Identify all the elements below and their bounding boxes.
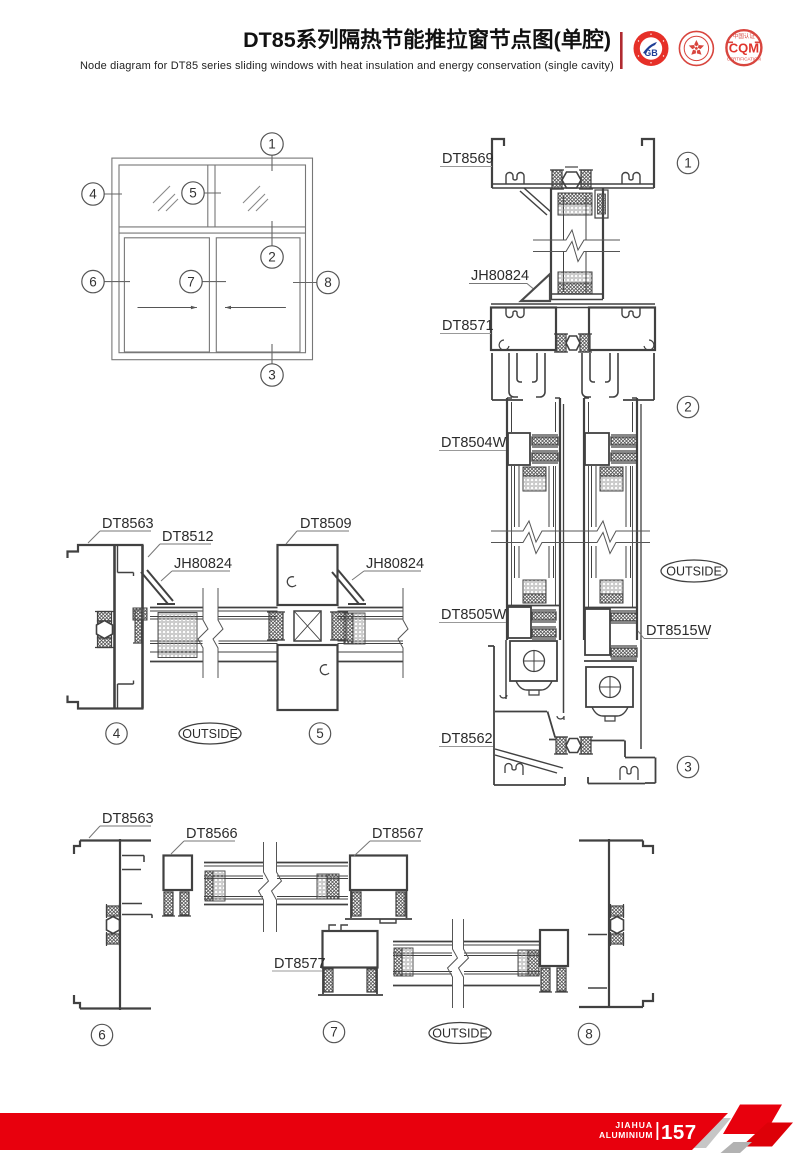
svg-text:DT8566: DT8566 [186, 826, 238, 842]
svg-text:DT8509: DT8509 [300, 516, 352, 532]
svg-text:3: 3 [268, 368, 276, 383]
svg-text:OUTSIDE: OUTSIDE [666, 565, 722, 579]
svg-text:7: 7 [187, 274, 195, 289]
svg-text:1: 1 [268, 137, 276, 152]
svg-text:OUTSIDE: OUTSIDE [182, 727, 238, 741]
svg-text:5: 5 [316, 726, 324, 741]
svg-text:JH80824: JH80824 [471, 268, 529, 284]
svg-text:CERTIFICATION: CERTIFICATION [727, 57, 761, 62]
svg-text:DT8571: DT8571 [442, 318, 494, 334]
svg-text:4: 4 [113, 726, 121, 741]
svg-text:8: 8 [324, 275, 332, 290]
svg-text:CQM: CQM [729, 41, 759, 56]
svg-text:DT8577: DT8577 [274, 956, 326, 972]
svg-text:6: 6 [98, 1028, 106, 1043]
svg-text:4: 4 [89, 187, 97, 202]
svg-text:DT8567: DT8567 [372, 826, 424, 842]
svg-text:DT8515W: DT8515W [646, 623, 712, 639]
svg-text:OUTSIDE: OUTSIDE [432, 1027, 488, 1041]
svg-text:157: 157 [661, 1121, 697, 1144]
svg-text:DT8569: DT8569 [442, 151, 494, 167]
svg-text:1: 1 [684, 156, 692, 171]
svg-text:DT8504W: DT8504W [441, 435, 507, 451]
svg-text:2: 2 [268, 250, 276, 265]
svg-text:6: 6 [89, 274, 97, 289]
svg-text:JIAHUA: JIAHUA [615, 1120, 653, 1130]
svg-text:JH80824: JH80824 [174, 556, 232, 572]
svg-text:DT8562: DT8562 [441, 731, 493, 747]
svg-text:GB: GB [644, 48, 658, 58]
svg-text:3: 3 [684, 760, 692, 775]
svg-text:JH80824: JH80824 [366, 556, 424, 572]
svg-text:7: 7 [330, 1025, 338, 1040]
svg-text:ALUMINIUM: ALUMINIUM [599, 1130, 653, 1140]
svg-text:DT8563: DT8563 [102, 811, 154, 827]
svg-text:DT85系列隔热节能推拉窗节点图(单腔): DT85系列隔热节能推拉窗节点图(单腔) [243, 27, 611, 52]
svg-text:DT8563: DT8563 [102, 516, 154, 532]
svg-text:中国认证: 中国认证 [733, 32, 756, 40]
svg-text:Node diagram for DT85 seri: Node diagram for DT85 series sliding win… [80, 60, 614, 72]
svg-text:DT8512: DT8512 [162, 529, 214, 545]
svg-text:8: 8 [585, 1027, 593, 1042]
svg-text:2: 2 [684, 400, 692, 415]
svg-text:5: 5 [189, 186, 197, 201]
svg-text:DT8505W: DT8505W [441, 607, 507, 623]
